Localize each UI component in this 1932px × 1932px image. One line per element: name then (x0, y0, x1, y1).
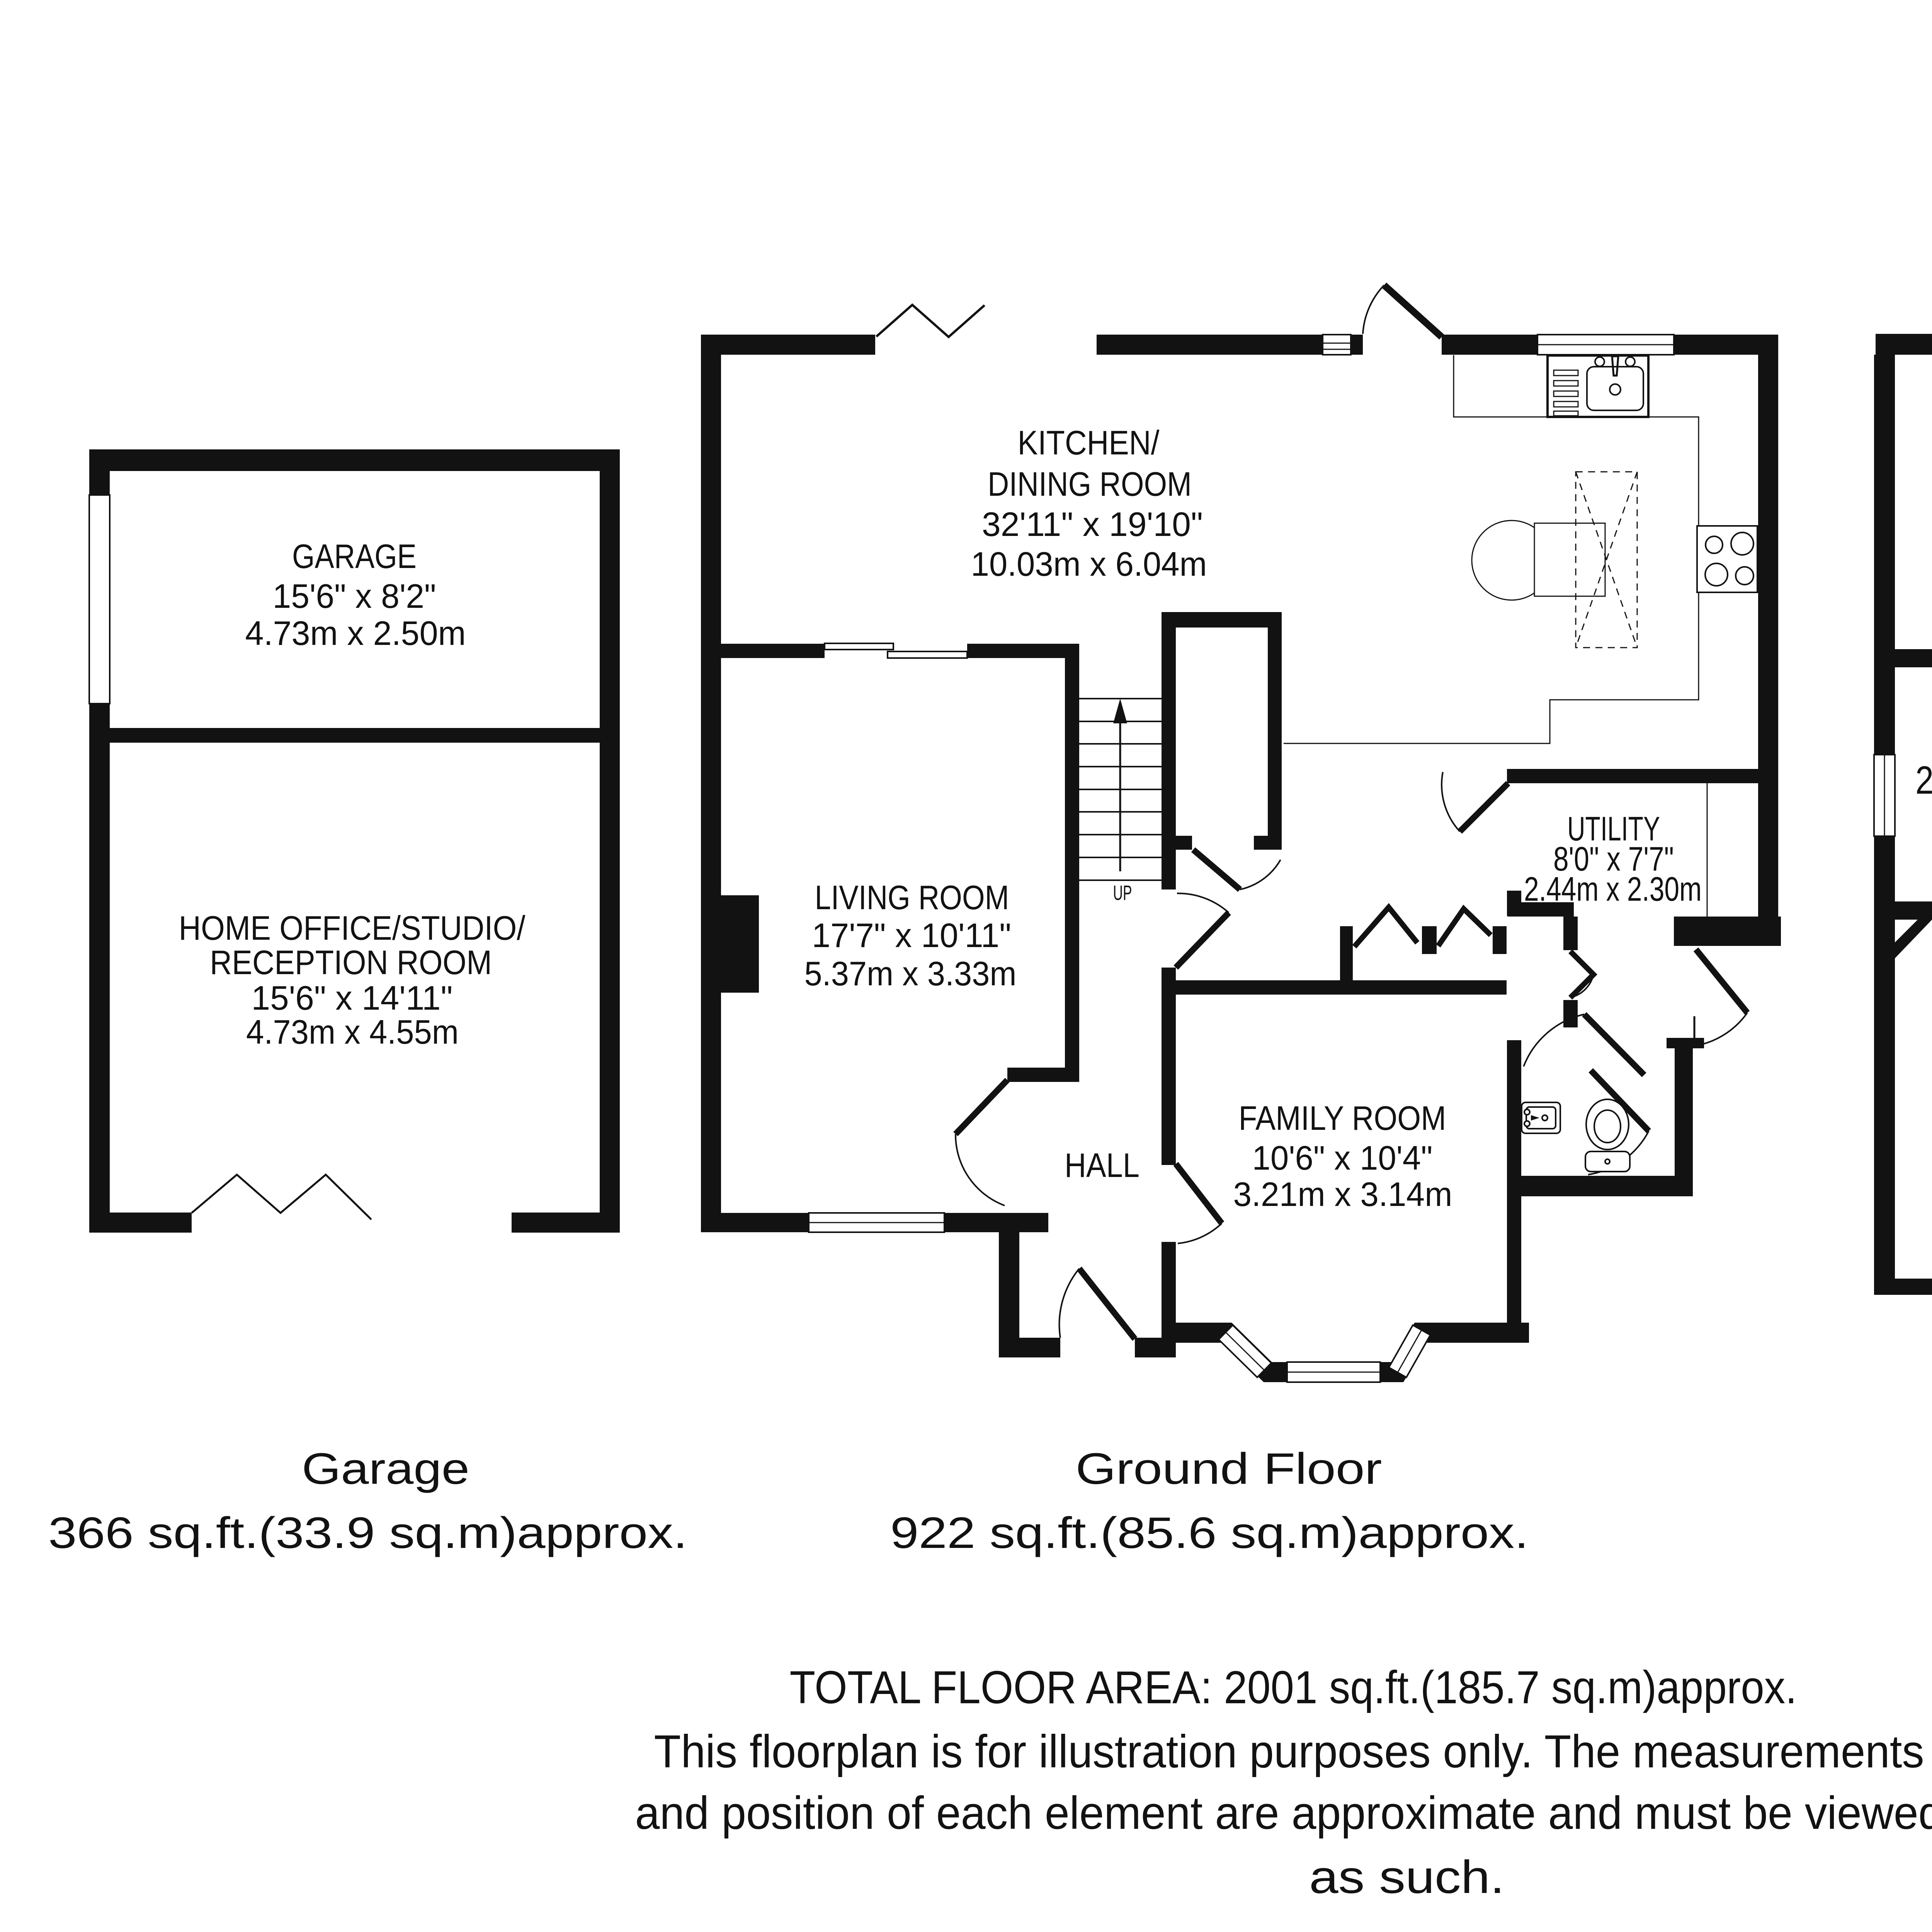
svg-text:17'7" x 10'11": 17'7" x 10'11" (812, 916, 1011, 954)
svg-text:Garage: Garage (302, 1444, 469, 1493)
svg-text:3.21m x 3.14m: 3.21m x 3.14m (1233, 1175, 1452, 1213)
svg-text:2.44m x 2.30m: 2.44m x 2.30m (1524, 870, 1702, 908)
svg-text:GARAGE: GARAGE (292, 537, 417, 575)
svg-text:UP: UP (1113, 881, 1132, 905)
svg-text:4.73m x 4.55m: 4.73m x 4.55m (246, 1013, 459, 1051)
svg-text:366 sq.ft.(33.9 sq.m)approx.: 366 sq.ft.(33.9 sq.m)approx. (48, 1509, 687, 1558)
svg-text:LIVING ROOM: LIVING ROOM (815, 878, 1009, 917)
svg-text:and position of each element a: and position of each element are approxi… (635, 1787, 1932, 1839)
svg-text:5.37m x 3.33m: 5.37m x 3.33m (804, 954, 1017, 993)
svg-text:922 sq.ft.(85.6 sq.m)approx.: 922 sq.ft.(85.6 sq.m)approx. (890, 1509, 1529, 1558)
svg-text:TOTAL FLOOR AREA: 2001 sq.ft.(: TOTAL FLOOR AREA: 2001 sq.ft.(185.7 sq.m… (790, 1662, 1797, 1713)
svg-text:2.54m x 2.41m: 2.54m x 2.41m (1915, 758, 1932, 802)
svg-text:32'11" x 19'10": 32'11" x 19'10" (982, 505, 1203, 543)
svg-text:DINING ROOM: DINING ROOM (988, 465, 1192, 503)
svg-text:as such.: as such. (1309, 1851, 1505, 1903)
svg-text:This floorplan is for illustra: This floorplan is for illustration purpo… (654, 1726, 1924, 1777)
svg-text:HOME OFFICE/STUDIO/: HOME OFFICE/STUDIO/ (179, 909, 526, 947)
svg-text:Ground Floor: Ground Floor (1076, 1444, 1382, 1493)
svg-text:HALL: HALL (1065, 1146, 1139, 1184)
svg-text:15'6" x 14'11": 15'6" x 14'11" (252, 979, 453, 1017)
svg-text:FAMILY ROOM: FAMILY ROOM (1239, 1099, 1446, 1137)
svg-text:RECEPTION ROOM: RECEPTION ROOM (210, 943, 492, 981)
svg-text:15'6" x 8'2": 15'6" x 8'2" (273, 577, 436, 615)
svg-text:10'6" x 10'4": 10'6" x 10'4" (1252, 1139, 1433, 1177)
svg-text:10.03m x 6.04m: 10.03m x 6.04m (971, 545, 1207, 583)
svg-text:KITCHEN/: KITCHEN/ (1018, 423, 1160, 462)
svg-text:4.73m x 2.50m: 4.73m x 2.50m (245, 614, 466, 652)
